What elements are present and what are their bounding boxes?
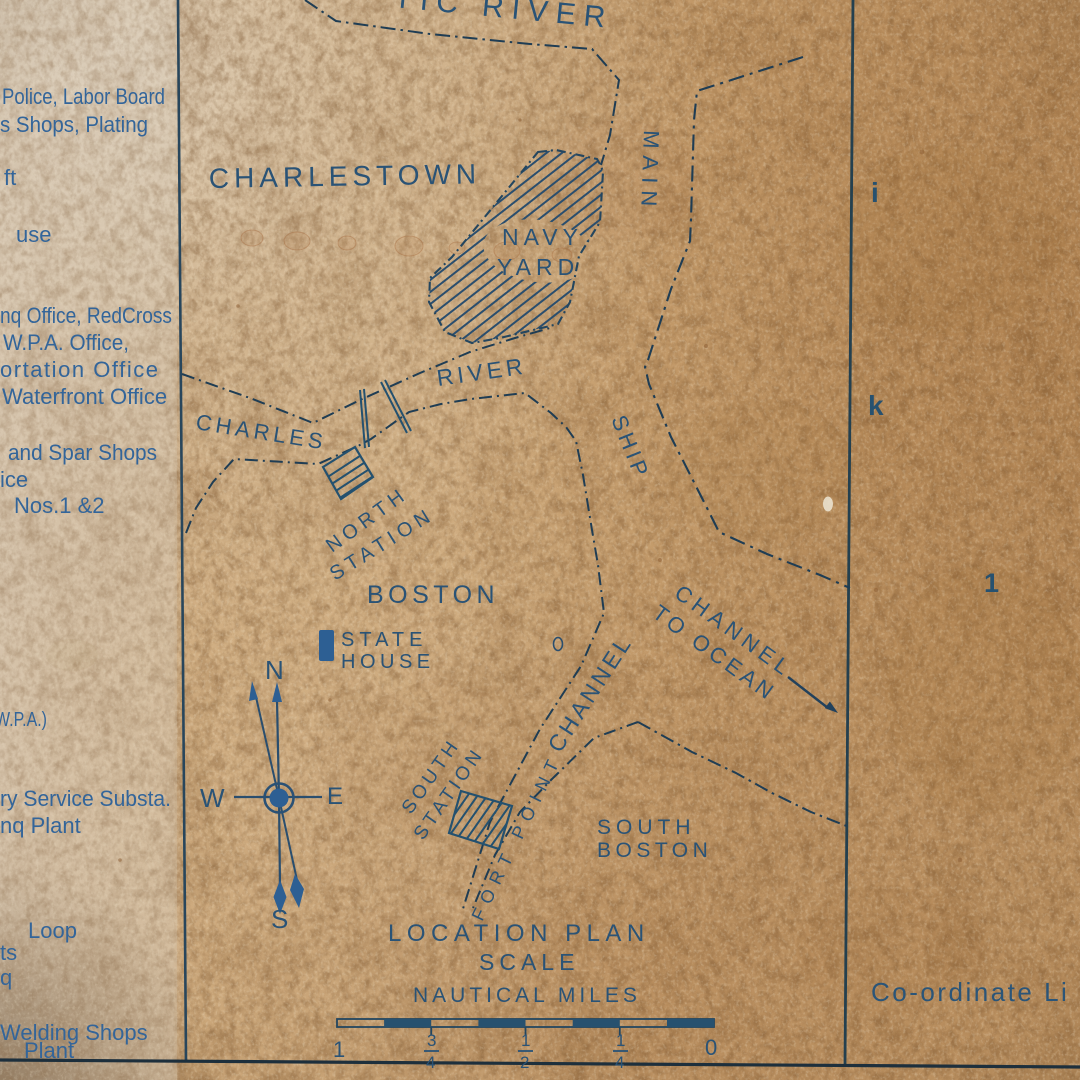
svg-text:0: 0 [705,1035,717,1060]
svg-text:BOSTON: BOSTON [597,839,712,862]
svg-text:N: N [265,655,284,685]
svg-text:Loop: Loop [28,918,77,943]
svg-text:NAVY: NAVY [502,224,583,250]
svg-text:W.P.A. Office,: W.P.A. Office, [3,330,129,355]
svg-text:s Shops, Plating: s Shops, Plating [0,112,148,137]
svg-text:SOUTH: SOUTH [597,816,696,839]
svg-text:ry Service Substa.: ry Service Substa. [0,786,171,811]
svg-text:BOSTON: BOSTON [367,581,499,609]
svg-text:Co-ordinate Li: Co-ordinate Li [871,977,1069,1007]
svg-text:1: 1 [333,1037,345,1062]
svg-text:i: i [871,177,879,208]
svg-text:3: 3 [427,1031,436,1050]
svg-text:4: 4 [615,1053,624,1072]
svg-text:E: E [327,783,343,810]
svg-text:ft: ft [4,165,16,190]
svg-text:use: use [16,222,51,247]
svg-text:ice: ice [0,467,28,492]
svg-text:YARD: YARD [497,254,579,280]
svg-text:nq Office, RedCross: nq Office, RedCross [0,303,172,328]
svg-text:S: S [271,904,288,934]
svg-text:Nos.1 &2: Nos.1 &2 [14,493,105,518]
svg-text:ortation Office: ortation Office [0,357,158,382]
svg-text:NAUTICAL MILES: NAUTICAL MILES [413,984,641,1007]
svg-text:and Spar Shops: and Spar Shops [8,440,157,465]
svg-text:MAIN: MAIN [636,130,664,214]
svg-text:1: 1 [616,1031,625,1050]
svg-text:W.P.A.): W.P.A.) [0,709,47,731]
svg-text:nq Plant: nq Plant [0,813,81,838]
svg-text:Waterfront Office: Waterfront Office [2,384,167,409]
svg-text:W: W [200,783,225,813]
svg-text:2: 2 [520,1053,529,1072]
svg-text:Police, Labor Board: Police, Labor Board [2,84,165,109]
svg-text:4: 4 [426,1053,435,1072]
svg-text:1: 1 [984,568,999,598]
svg-text:HOUSE: HOUSE [341,651,435,673]
svg-text:STATE: STATE [341,629,427,651]
svg-text:SCALE: SCALE [479,949,579,975]
svg-text:q: q [0,965,12,990]
svg-text:Plant: Plant [24,1038,74,1063]
svg-text:CHARLESTOWN: CHARLESTOWN [209,158,482,194]
svg-text:k: k [868,390,884,421]
svg-text:ts: ts [0,940,17,965]
svg-text:1: 1 [521,1031,530,1050]
svg-text:LOCATION PLAN: LOCATION PLAN [388,920,650,947]
